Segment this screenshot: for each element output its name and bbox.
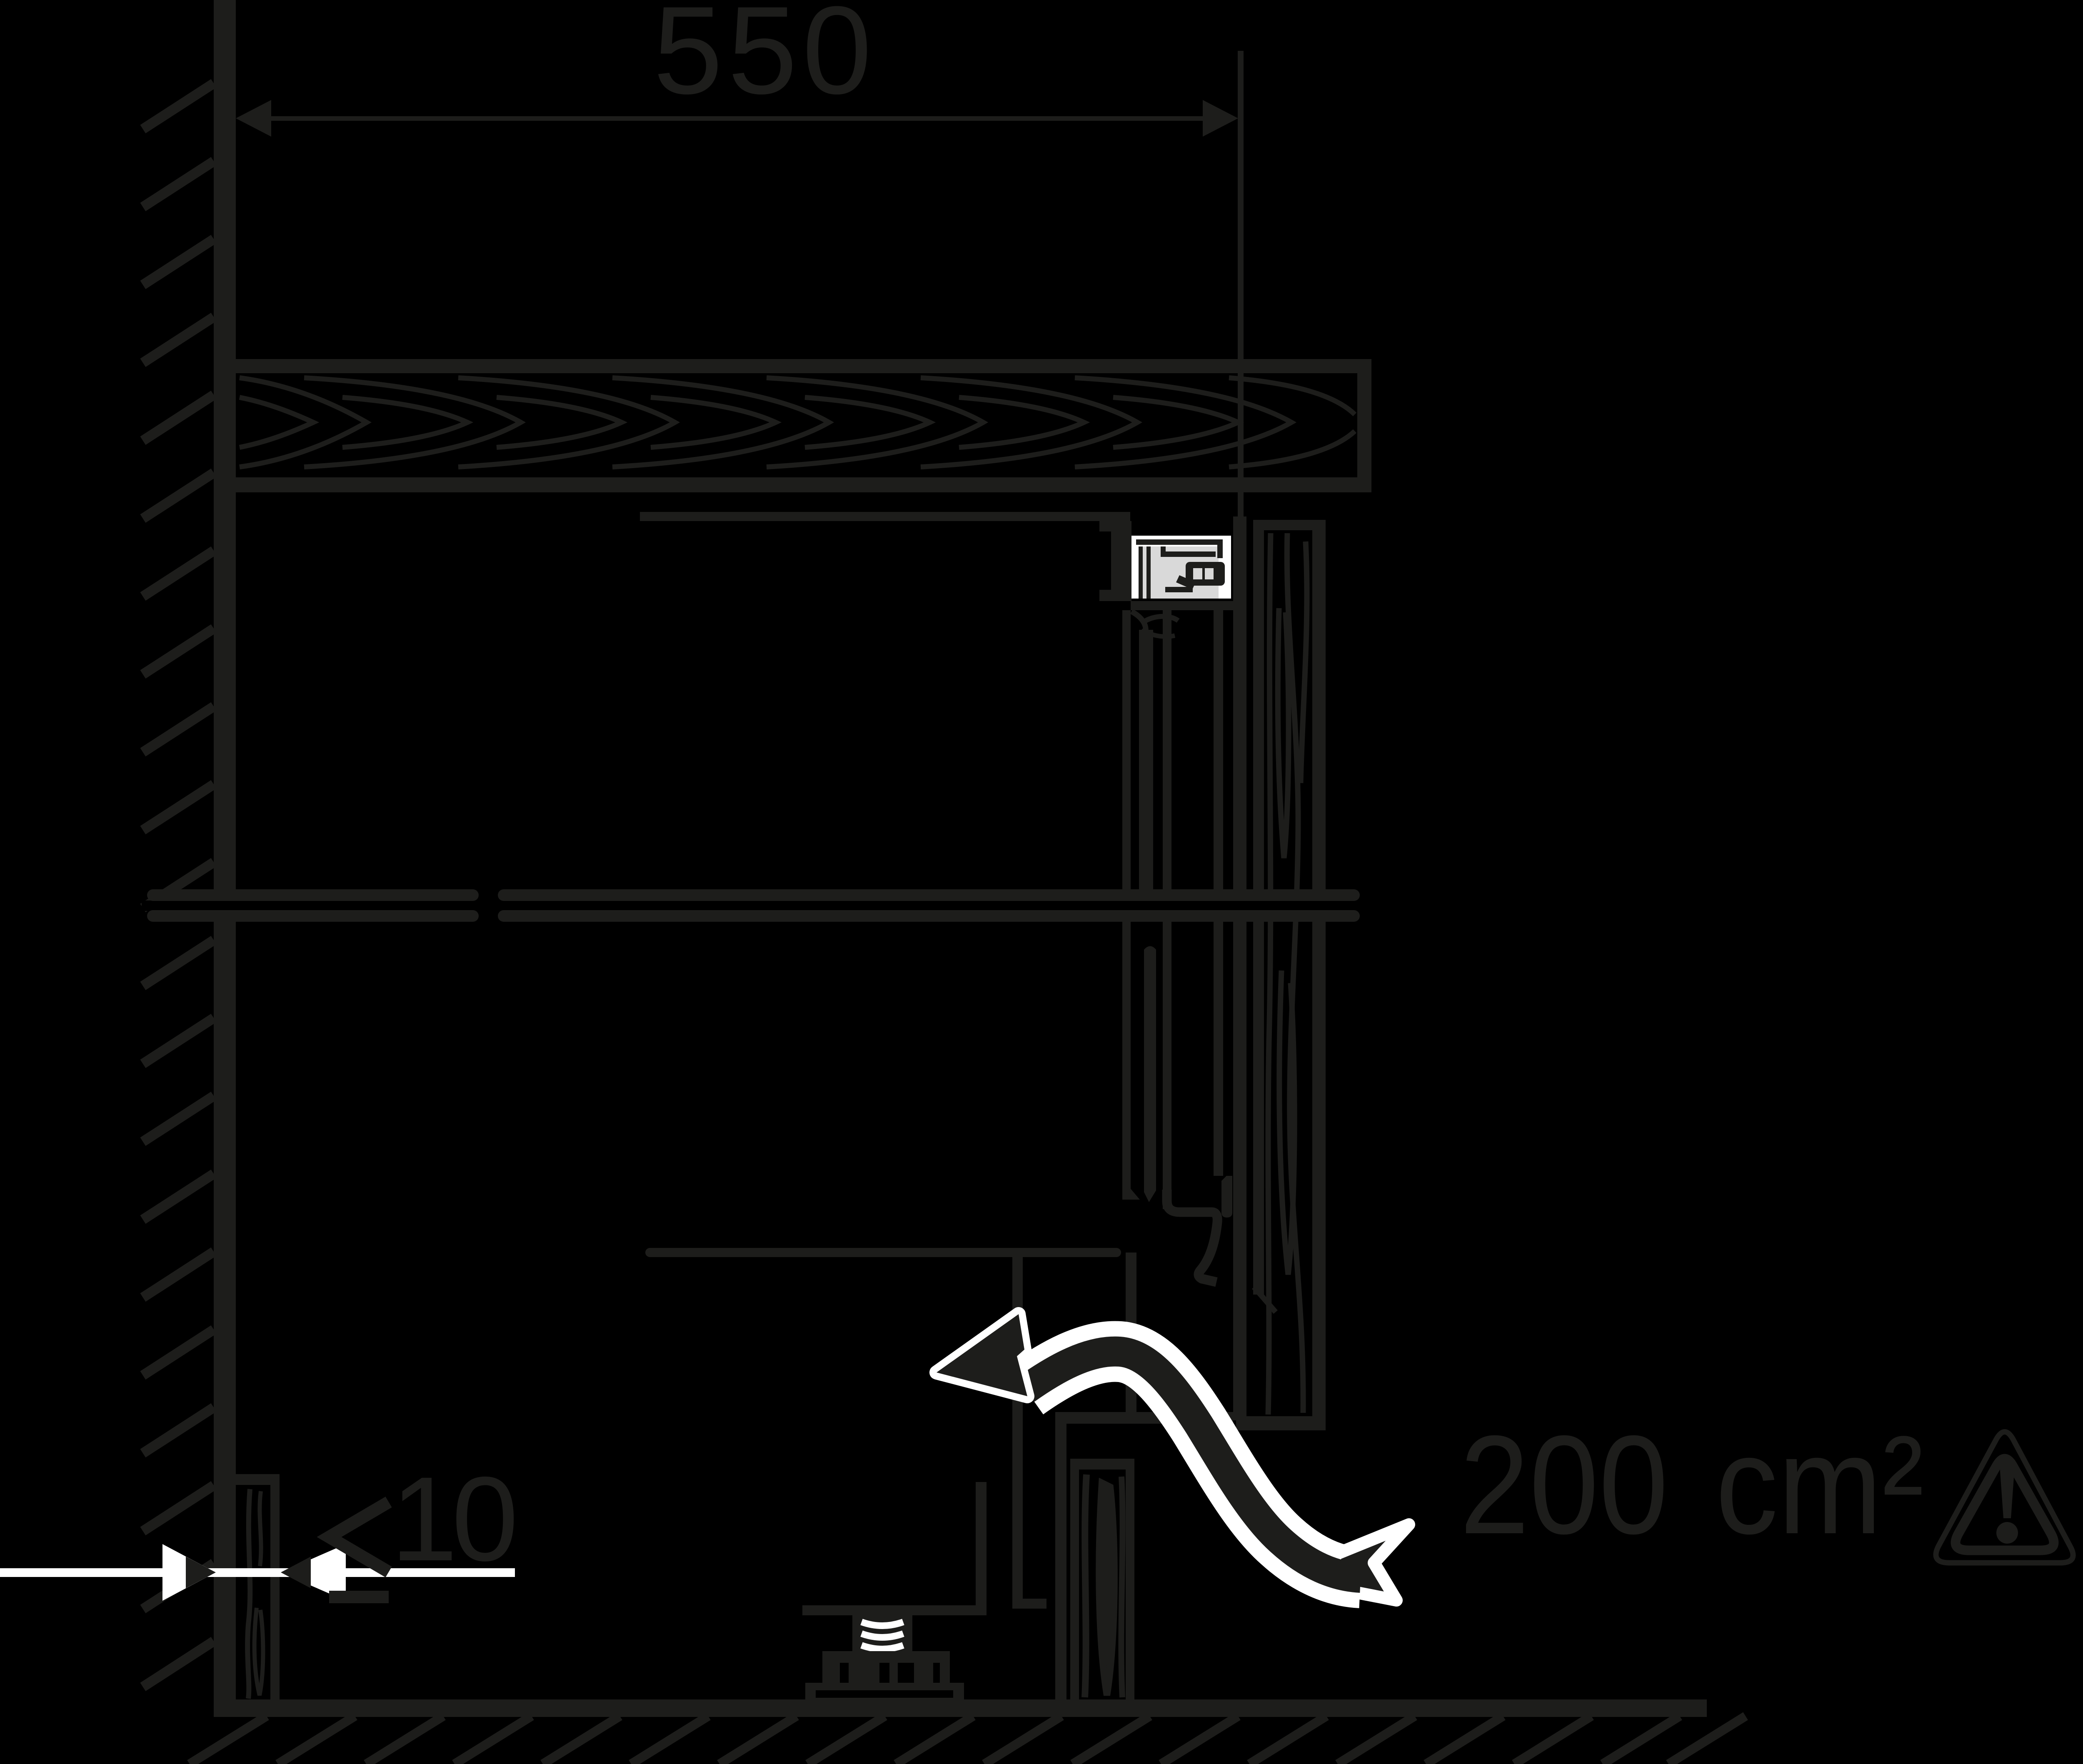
svg-text:550: 550 [653, 0, 877, 120]
svg-text:10: 10 [391, 1452, 515, 1586]
svg-text:200 cm²: 200 cm² [1460, 1406, 1924, 1563]
